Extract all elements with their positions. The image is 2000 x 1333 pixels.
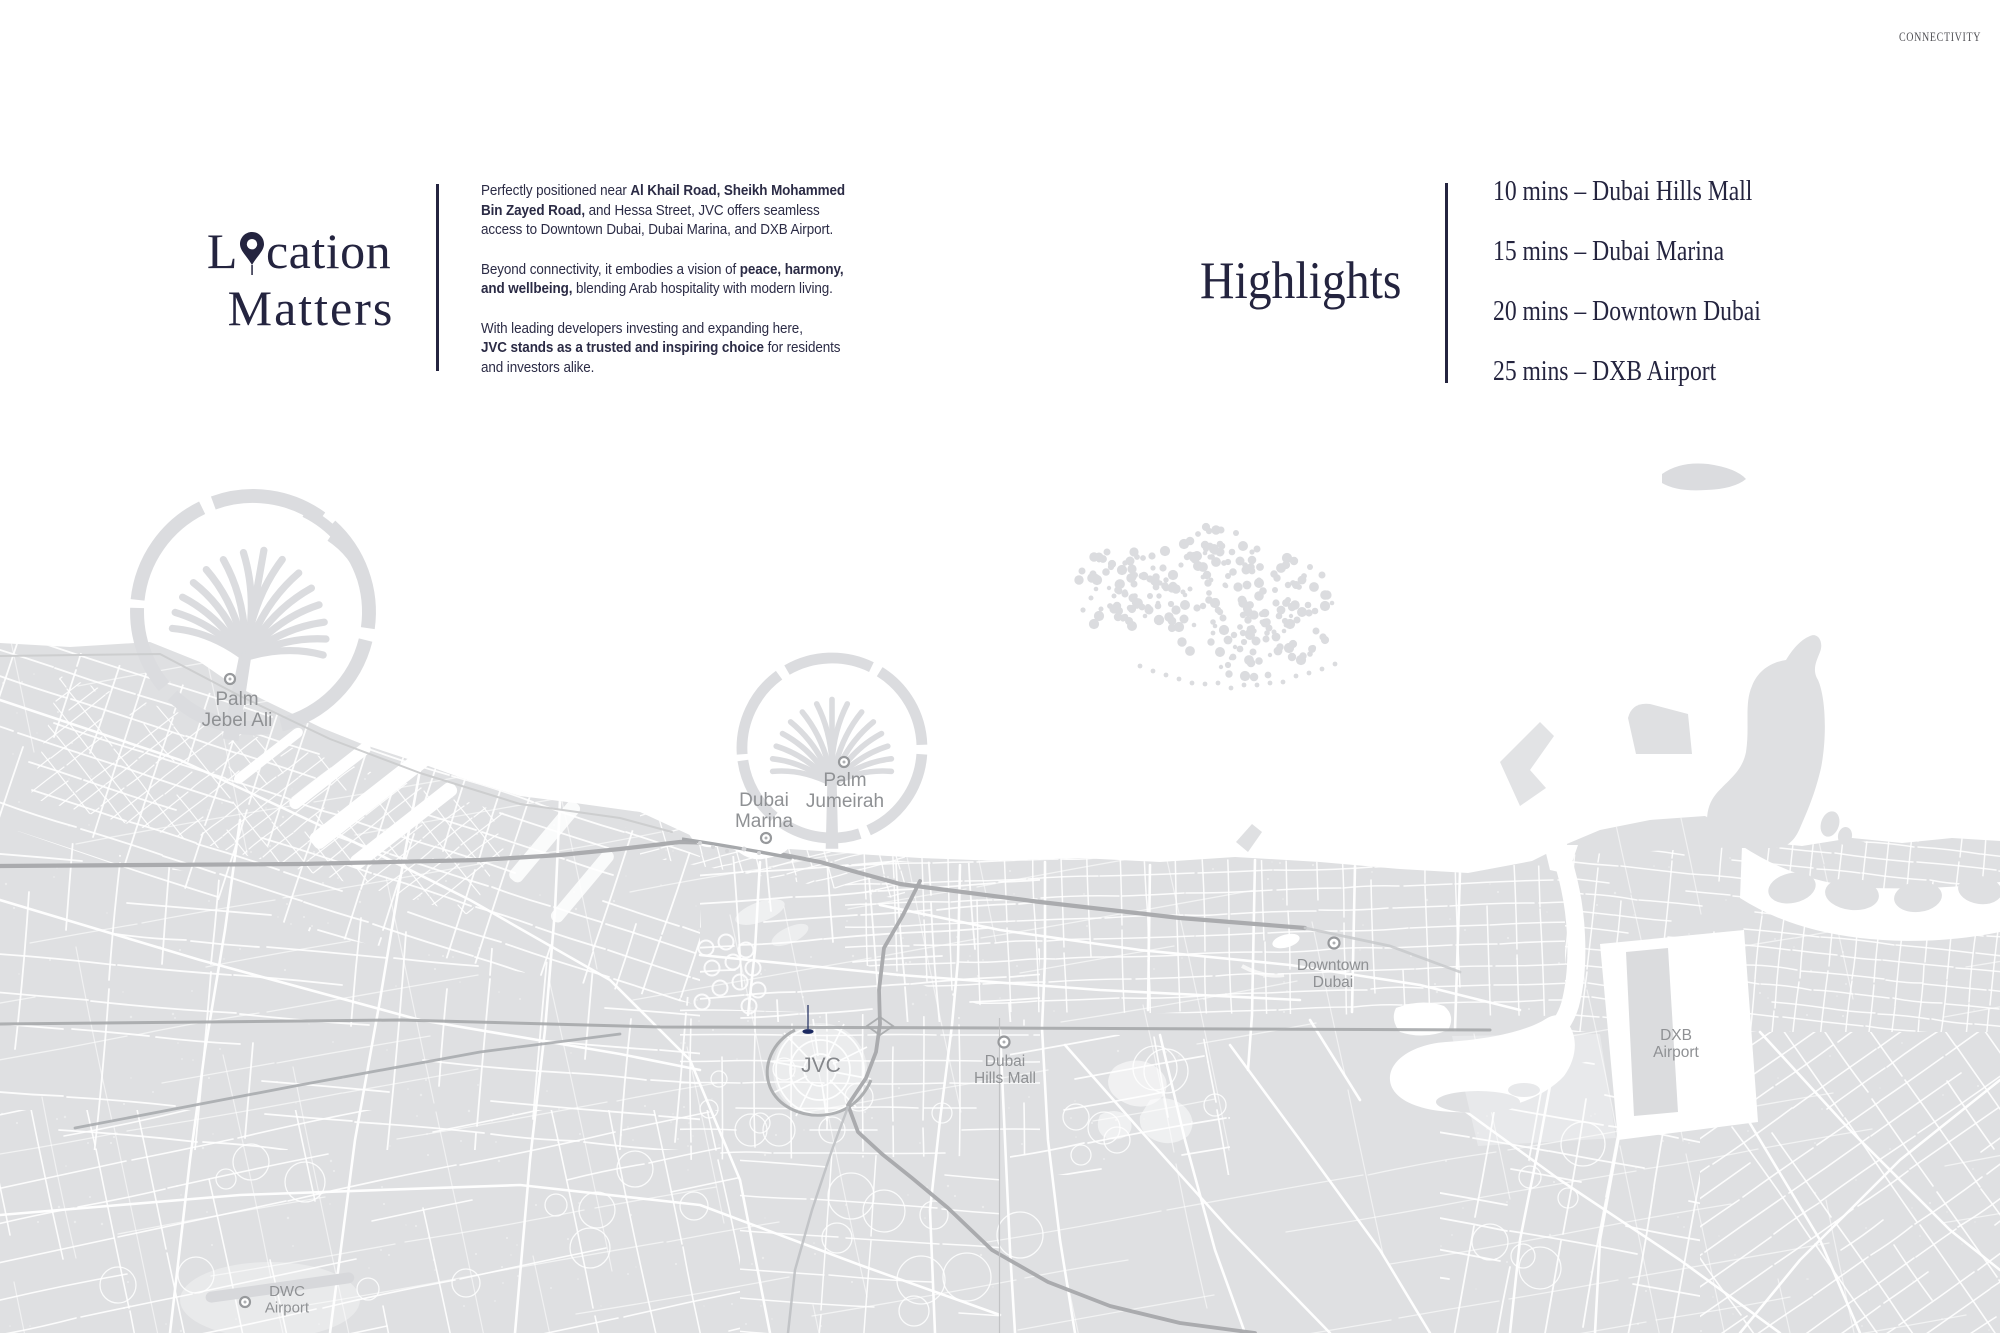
svg-text:DWCAirport: DWCAirport bbox=[265, 1283, 310, 1317]
svg-text:DubaiMarina: DubaiMarina bbox=[735, 790, 794, 832]
svg-text:JVC: JVC bbox=[801, 1054, 841, 1077]
